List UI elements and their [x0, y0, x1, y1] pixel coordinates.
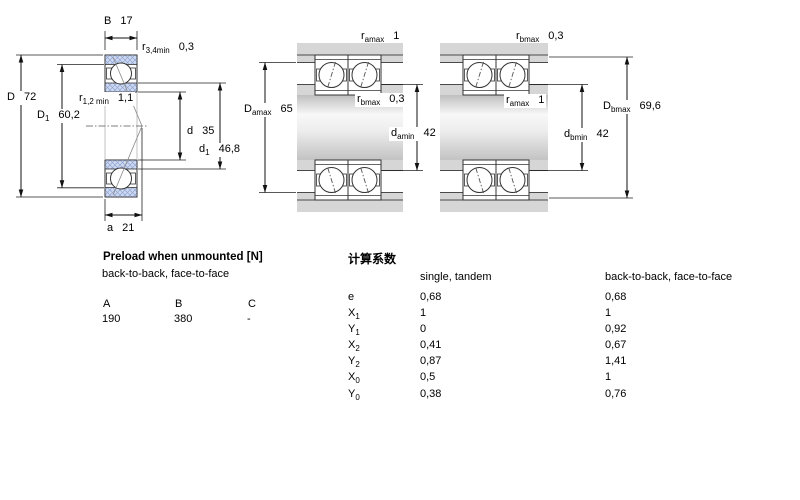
- factor-row-value1: 0,41: [420, 339, 441, 351]
- factor-row-value2: 0,76: [605, 388, 626, 400]
- preload-col-C: C: [248, 298, 256, 310]
- factor-row-value1: 0: [420, 323, 426, 335]
- factor-row-value1: 0,87: [420, 355, 441, 367]
- preload-subtitle: back-to-back, face-to-face: [102, 268, 229, 280]
- dim-label-damin: damin42: [389, 127, 438, 141]
- dim-label-r34: r3,4min0,3: [142, 41, 194, 55]
- factor-row-value1: 0,38: [420, 388, 441, 400]
- dim-label-ramax-b: ramax1: [504, 94, 546, 108]
- dim-label-d: d35: [185, 125, 216, 139]
- factor-row-label: X0: [348, 371, 360, 385]
- bearing-unit: [348, 55, 381, 95]
- bearing-unit: [348, 160, 381, 200]
- bearing-unit: [496, 55, 529, 95]
- factor-row-value1: 0,68: [420, 291, 441, 303]
- bearing-unit: [463, 55, 496, 95]
- factors-title: 计算系数: [348, 250, 396, 267]
- bearing-unit: [315, 160, 348, 200]
- factor-row-label: Y2: [348, 355, 360, 369]
- factors-col1-header: single, tandem: [420, 271, 492, 283]
- preload-val-B: 380: [174, 313, 192, 325]
- factor-row-label: Y1: [348, 323, 360, 337]
- factor-row-value2: 0,68: [605, 291, 626, 303]
- factor-row-value2: 1: [605, 371, 611, 383]
- factor-row-value2: 0,92: [605, 323, 626, 335]
- preload-title: Preload when unmounted [N]: [103, 251, 263, 263]
- factor-row-value2: 0,67: [605, 339, 626, 351]
- preload-col-A: A: [103, 298, 110, 310]
- factor-row-label: Y0: [348, 388, 360, 402]
- preload-val-A: 190: [102, 313, 120, 325]
- dim-label-Dbmax: Dbmax69,6: [601, 100, 663, 114]
- bearing-unit: [496, 160, 529, 200]
- dim-label-rbmax-a: rbmax0,3: [355, 93, 407, 107]
- dim-label-a: a21: [107, 222, 134, 236]
- dim-label-ramax-a: ramax1: [361, 30, 399, 44]
- factor-row-label: X2: [348, 339, 360, 353]
- factor-row-value2: 1,41: [605, 355, 626, 367]
- factors-col2-header: back-to-back, face-to-face: [605, 271, 732, 283]
- factors-table: 计算系数 single, tandem back-to-back, face-t…: [348, 250, 778, 410]
- bearing-unit: [315, 55, 348, 95]
- dim-label-r12: r1,2 min1,1: [77, 92, 135, 106]
- bearing-unit: [463, 160, 496, 200]
- dim-label-dbmin: dbmin42: [562, 128, 611, 142]
- dim-label-B: B17: [104, 15, 133, 29]
- dim-label-D1: D160,2: [35, 109, 82, 123]
- factor-row-value1: 0,5: [420, 371, 435, 383]
- dim-label-rbmax-b: rbmax0,3: [516, 30, 564, 44]
- dim-label-d1: d146,8: [197, 143, 242, 157]
- dim-label-Damax: Damax65: [242, 103, 295, 117]
- dim-label-D: D72: [5, 91, 38, 105]
- factor-row-label: e: [348, 291, 354, 305]
- preload-col-B: B: [175, 298, 182, 310]
- preload-table: Preload when unmounted [N] back-to-back,…: [103, 251, 353, 331]
- factor-row-value2: 1: [605, 307, 611, 319]
- preload-val-C: -: [247, 313, 251, 325]
- factor-row-label: X1: [348, 307, 360, 321]
- factor-row-value1: 1: [420, 307, 426, 319]
- bearing-datasheet-page: B17 r3,4min0,3 D72 r1,2 min1,1 D160,2 d3…: [0, 0, 800, 500]
